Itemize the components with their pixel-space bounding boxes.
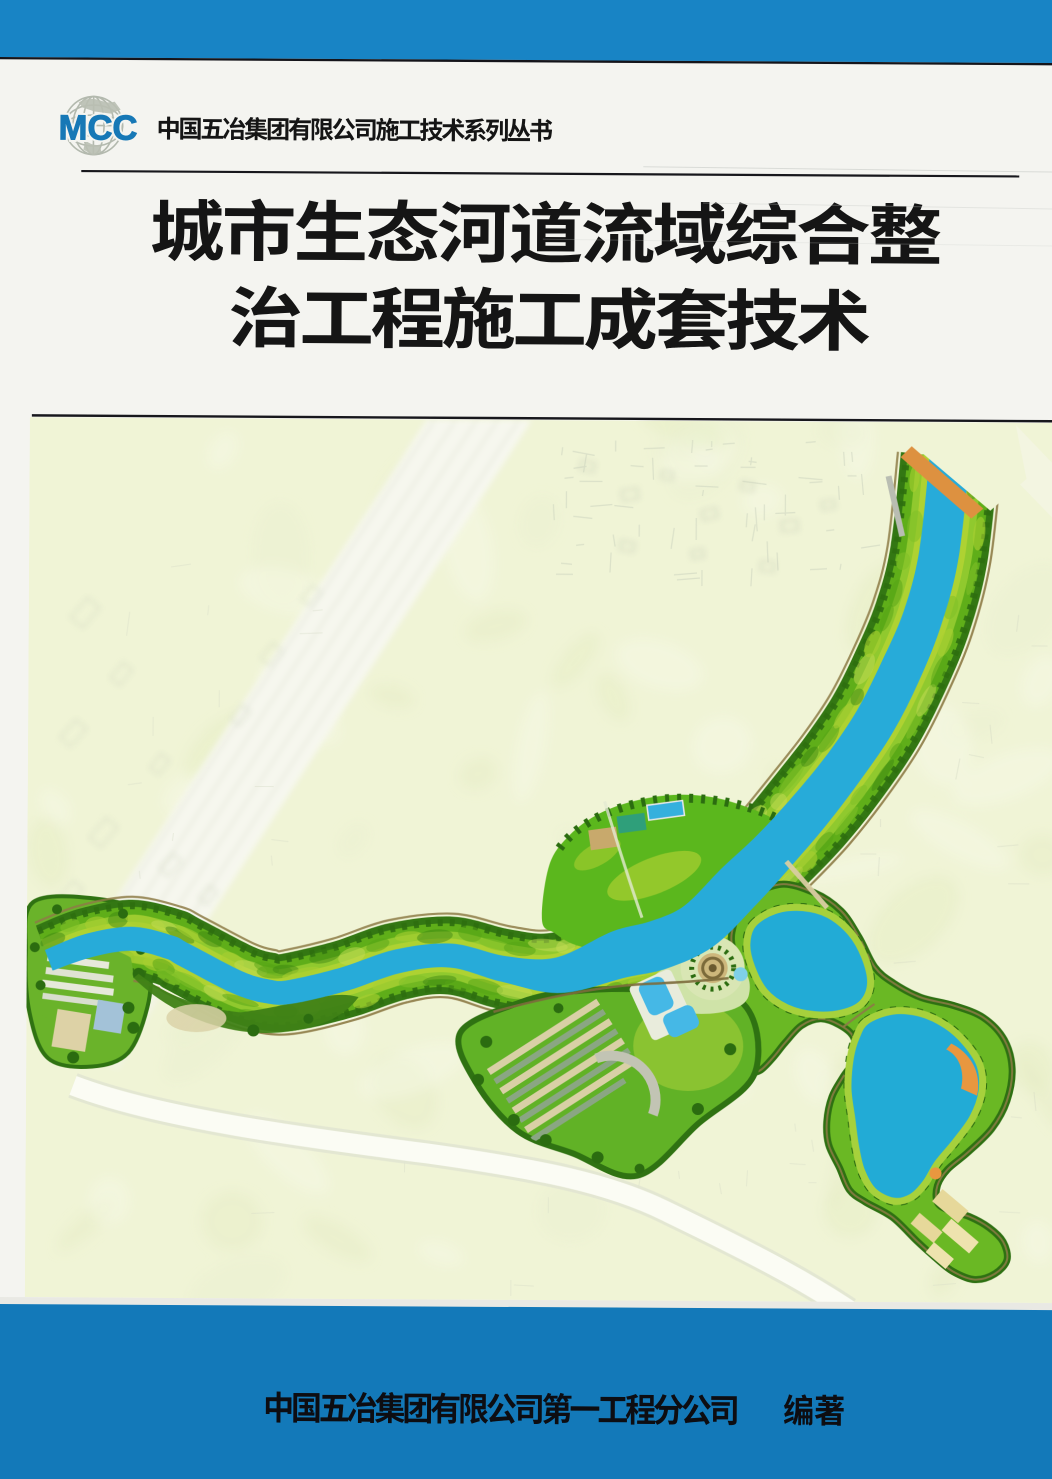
svg-text:MCC: MCC: [58, 108, 137, 147]
